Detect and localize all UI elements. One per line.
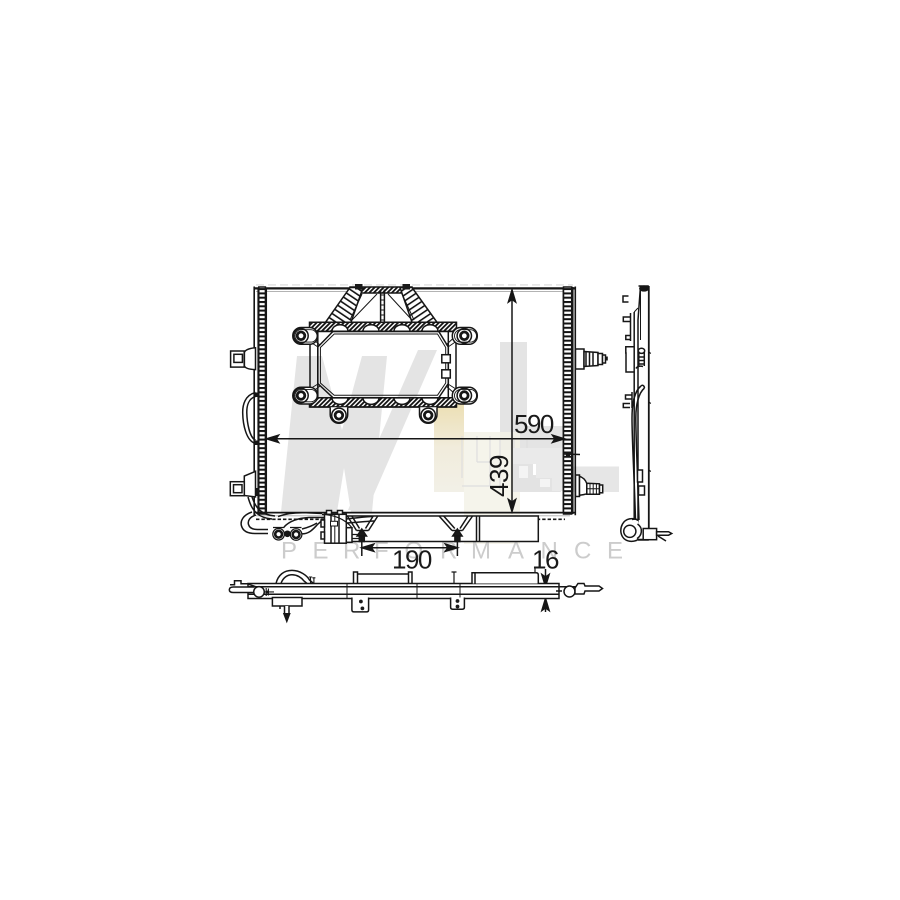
svg-text:16: 16 (532, 545, 559, 575)
svg-text:590: 590 (514, 409, 554, 439)
svg-text:190: 190 (392, 545, 432, 575)
svg-text:439: 439 (484, 455, 514, 497)
svg-text:C: C (574, 538, 591, 565)
svg-text:E: E (607, 538, 623, 565)
svg-text:P: P (281, 538, 297, 565)
